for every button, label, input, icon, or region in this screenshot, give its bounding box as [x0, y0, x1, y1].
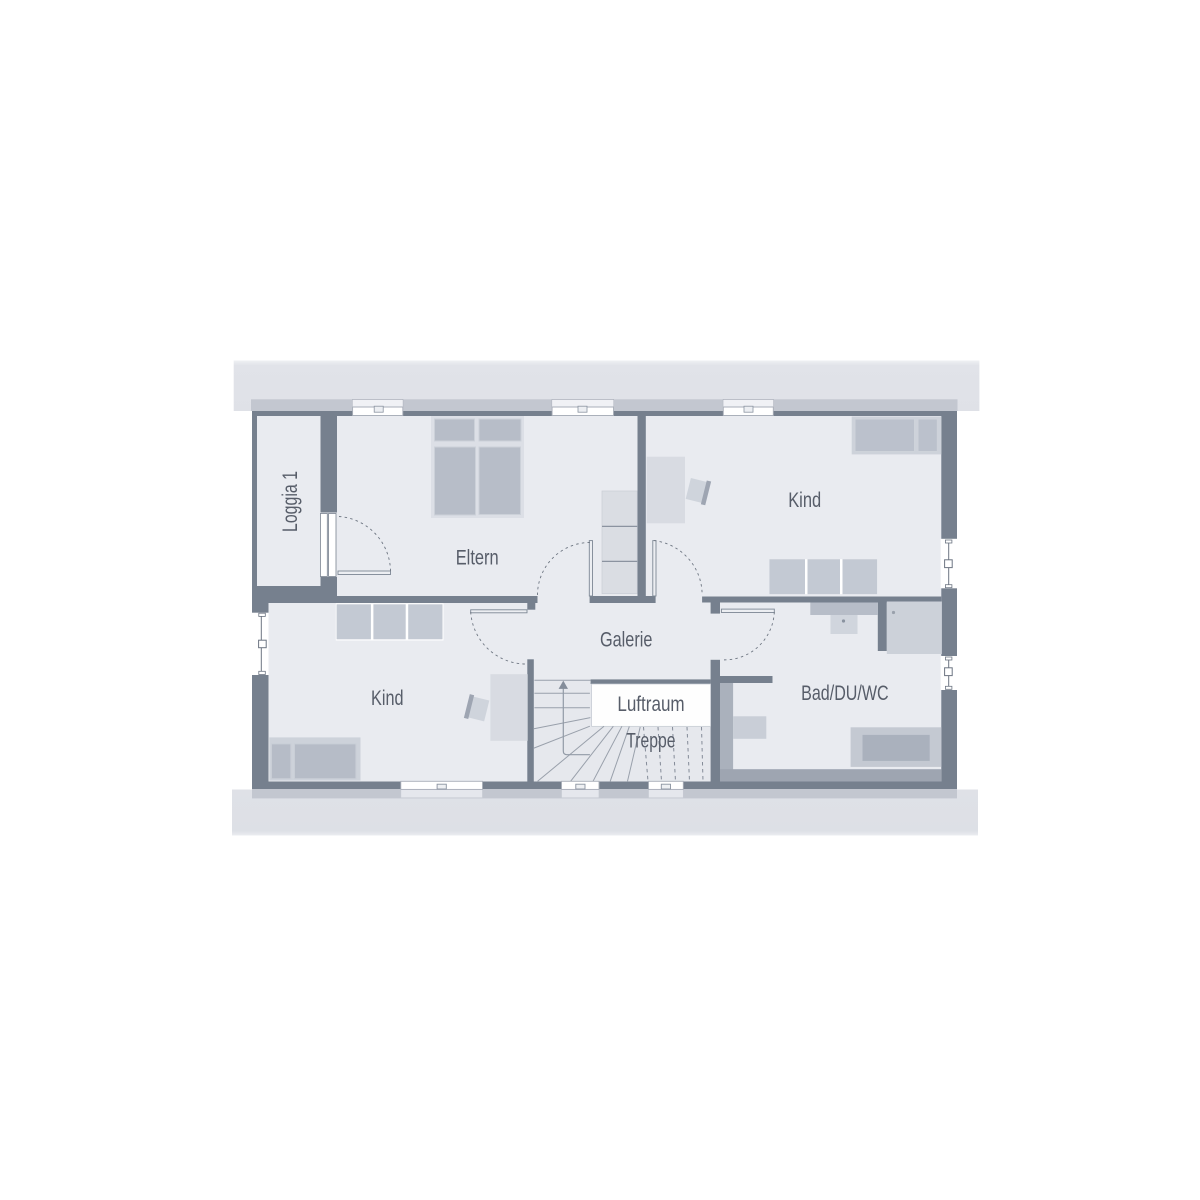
svg-text:Treppe: Treppe: [626, 729, 675, 753]
svg-text:Loggia 1: Loggia 1: [278, 471, 302, 532]
svg-text:Bad/DU/WC: Bad/DU/WC: [801, 681, 889, 705]
svg-text:Kind: Kind: [371, 686, 404, 710]
svg-text:Luftraum: Luftraum: [617, 692, 684, 716]
svg-text:Galerie: Galerie: [600, 627, 653, 651]
svg-text:Eltern: Eltern: [456, 546, 499, 570]
svg-text:Kind: Kind: [788, 488, 821, 512]
